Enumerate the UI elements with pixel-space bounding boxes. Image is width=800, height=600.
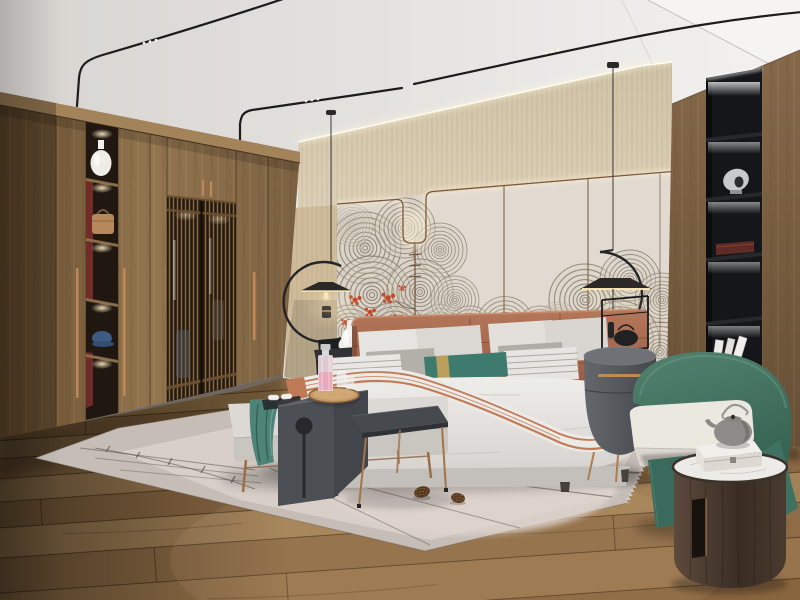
black-display-shelf <box>706 68 762 398</box>
bedroom-photo: Photorealistic render of a modern Chines… <box>0 0 800 600</box>
vignette-left <box>0 0 60 600</box>
lattice-doors <box>167 196 236 402</box>
bedroom-scene <box>0 0 800 600</box>
wardrobe-niches <box>86 122 118 420</box>
